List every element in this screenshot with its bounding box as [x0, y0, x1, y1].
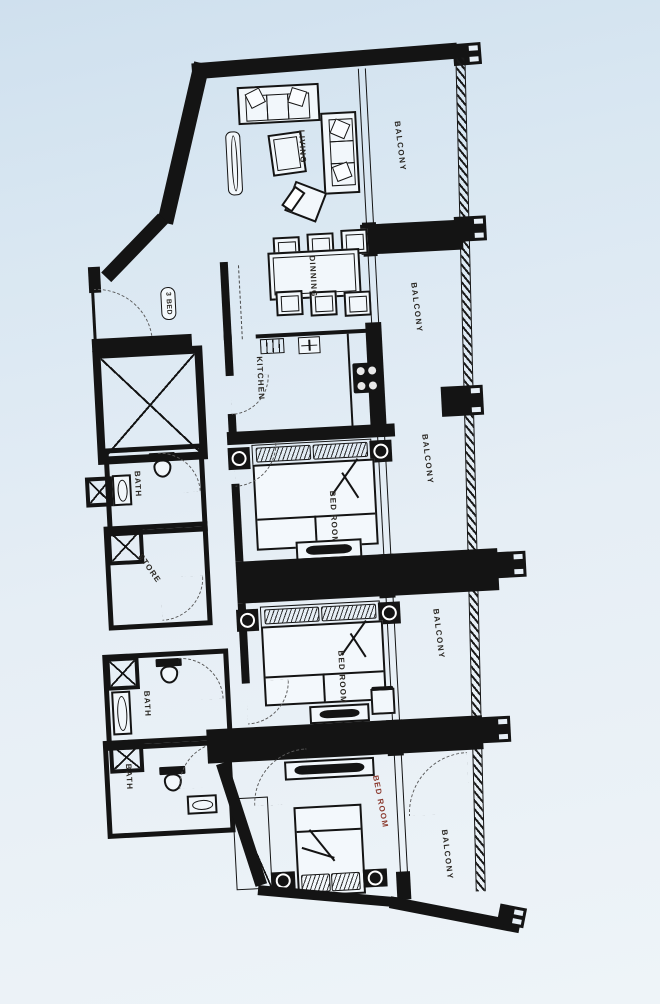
label-kitchen: KITCHEN: [255, 356, 265, 400]
dining-chair: [275, 290, 303, 316]
bed: [293, 804, 366, 897]
door-arc: [178, 656, 223, 701]
kitchen-appliance: [260, 338, 285, 354]
entrance-door-arc: [93, 286, 153, 344]
door-arc: [160, 576, 205, 621]
blanket-seam: [322, 673, 325, 701]
pillow: [331, 872, 361, 891]
balcony-door-arc: [406, 752, 470, 816]
floor-plan: BALCONY BALCONY BALCONY BALCONY BALCONY …: [50, 18, 569, 986]
column-cap: [454, 215, 487, 242]
duct-x-box: [105, 656, 140, 691]
label-bath-1: BATH: [133, 471, 142, 498]
wall-diagonal-entry: [101, 213, 168, 282]
wall-corridor: [231, 484, 243, 562]
sofa: [237, 83, 321, 125]
page-background: { "palette": { "ink": "#141414", "label_…: [0, 0, 660, 1004]
label-balcony-4: BALCONY: [431, 608, 445, 659]
column-cap: [441, 385, 485, 417]
label-bedroom-2: BED ROOM: [336, 650, 347, 704]
sofa: [320, 111, 360, 195]
wall-top: [191, 43, 457, 80]
sink-icon: [298, 336, 321, 354]
washbasin-icon: [187, 794, 218, 815]
blanket-seam: [297, 828, 361, 833]
wall-diagonal-living: [157, 61, 209, 224]
label-balcony-5: BALCONY: [440, 829, 454, 880]
armchair: [284, 181, 327, 223]
blanket-fold: [341, 472, 359, 498]
wall-corridor: [220, 262, 232, 340]
label-bath-2: BATH: [142, 691, 151, 718]
tv-console: [225, 131, 243, 196]
label-bedroom-3: BED ROOM: [371, 775, 389, 829]
label-bedroom-1: BED ROOM: [328, 491, 339, 545]
label-balcony-1: BALCONY: [393, 121, 407, 172]
pillow: [312, 442, 368, 460]
washbasin-icon: [111, 691, 132, 736]
stove-icon: [352, 362, 380, 393]
label-balcony-3: BALCONY: [420, 434, 434, 485]
washbasin-icon: [112, 474, 133, 506]
bedroom-chair: [370, 688, 395, 715]
label-bath-3: BATH: [124, 764, 133, 791]
label-living: LIVING: [297, 130, 307, 164]
door-arc: [158, 451, 201, 494]
balcony-divider: [360, 220, 463, 255]
pillow: [321, 604, 377, 622]
pillow: [264, 607, 320, 625]
sofa-cushion: [330, 140, 355, 164]
sofa-cushion: [266, 93, 289, 120]
nightstand: [236, 609, 259, 632]
blanket-fold: [350, 633, 367, 658]
label-balcony-2: BALCONY: [409, 282, 423, 333]
dining-chair: [343, 290, 371, 316]
wall-bedroom-divider: [235, 548, 499, 604]
nightstand: [363, 868, 388, 887]
bed: [252, 458, 378, 550]
label-dining: DINNING: [308, 255, 318, 298]
unit-badge: 3 BED: [160, 287, 177, 321]
boundary-dashed-line: [238, 265, 243, 339]
wall-jamb: [396, 871, 411, 900]
wall-corridor: [224, 334, 234, 376]
